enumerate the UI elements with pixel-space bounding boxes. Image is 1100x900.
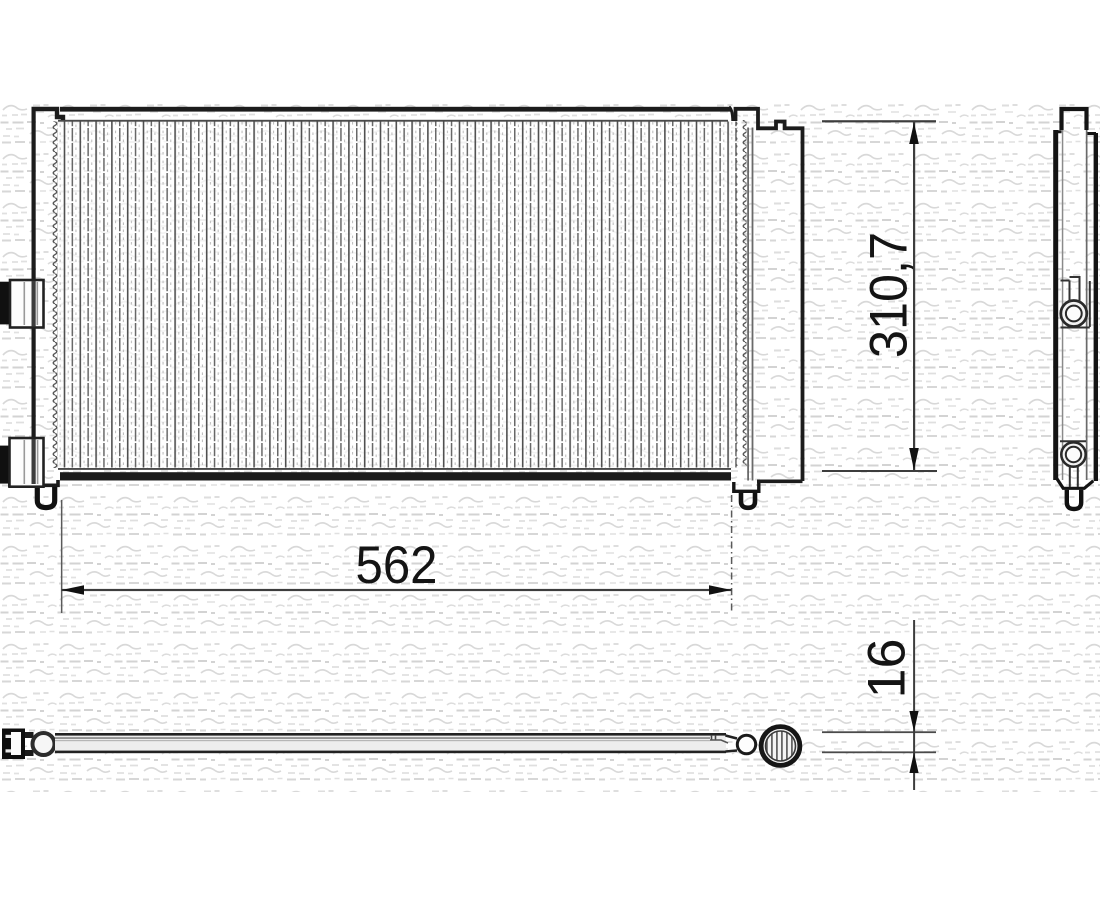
svg-text:310,7: 310,7 <box>860 232 919 358</box>
svg-text:562: 562 <box>356 536 438 595</box>
svg-text:16: 16 <box>858 639 917 699</box>
